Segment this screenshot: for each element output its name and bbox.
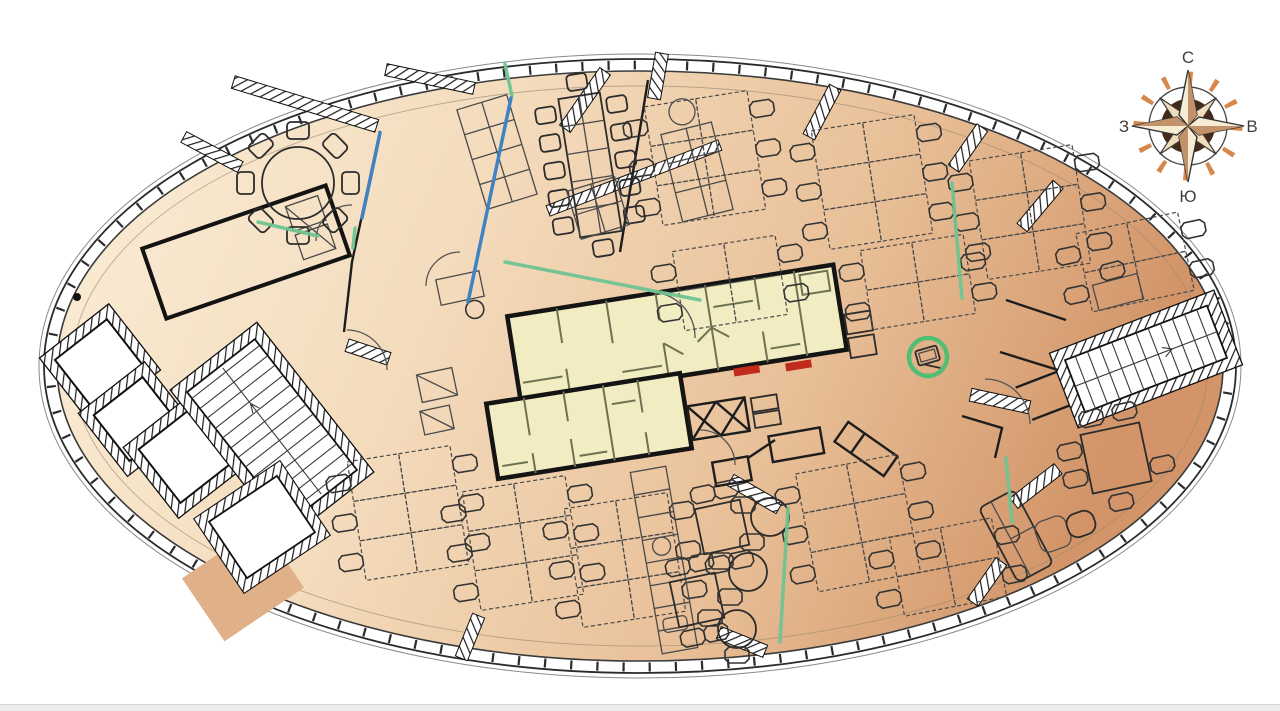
floor-plan-drawing: С В Ю З <box>0 0 1280 711</box>
compass-label-south: Ю <box>1179 187 1196 206</box>
horizontal-scrollbar-track[interactable] <box>0 704 1280 711</box>
compass-label-north: С <box>1182 48 1194 67</box>
compass-label-east: В <box>1246 117 1257 136</box>
compass-label-west: З <box>1119 117 1129 136</box>
column <box>73 293 81 301</box>
floor-plan-viewer: С В Ю З <box>0 0 1280 711</box>
